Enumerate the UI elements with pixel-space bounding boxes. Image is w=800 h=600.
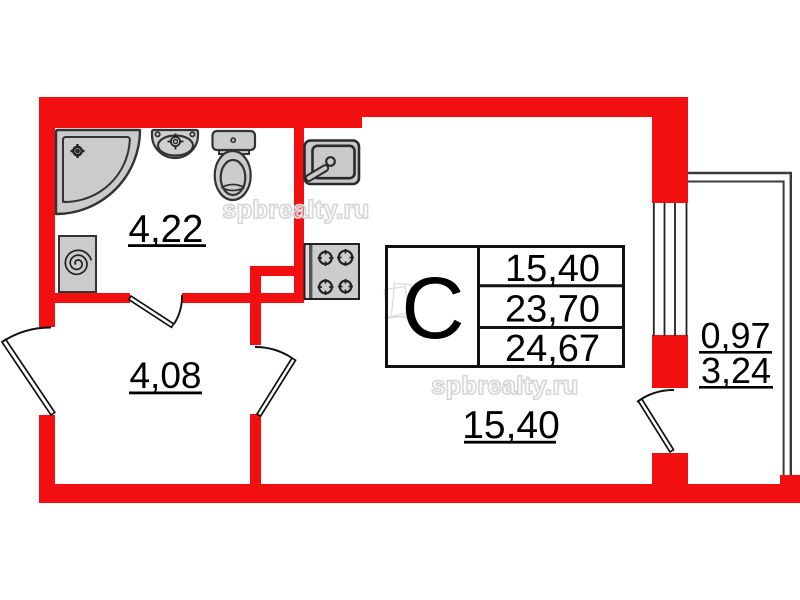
svg-text:spbrealty.ru: spbrealty.ru [222,196,369,224]
svg-text:15,40: 15,40 [462,404,560,447]
svg-text:С: С [401,259,464,357]
svg-text:24,67: 24,67 [505,328,600,370]
svg-text:15,40: 15,40 [505,248,600,290]
svg-text:spbrealty.ru: spbrealty.ru [431,372,578,400]
svg-text:4,08: 4,08 [129,355,201,396]
svg-text:23,70: 23,70 [505,289,600,331]
svg-text:3,24: 3,24 [701,350,771,391]
